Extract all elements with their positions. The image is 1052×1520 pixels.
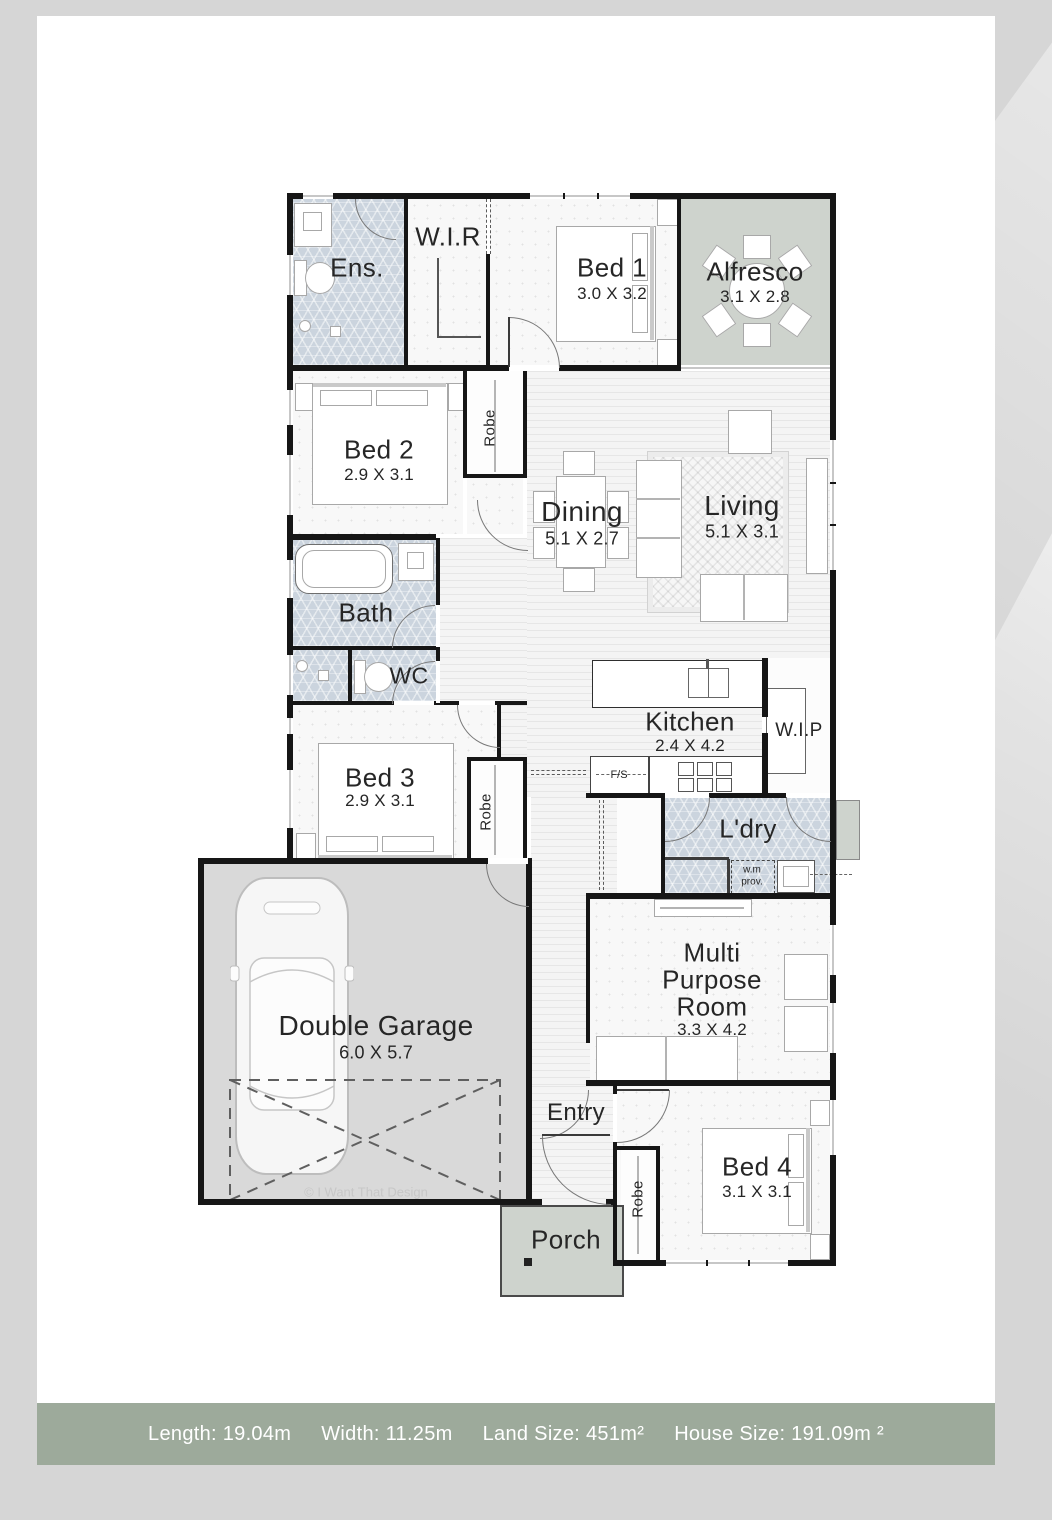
room-label-entry: Entry (547, 1099, 605, 1127)
room-label-bed2: Bed 2 (344, 435, 414, 466)
room-label-ens: Ens. (330, 253, 384, 284)
bed4-side-table (810, 1234, 830, 1260)
wall (486, 254, 490, 367)
window (287, 390, 293, 425)
room-label-bath: Bath (338, 598, 393, 629)
bed4-side-table (810, 1100, 830, 1126)
living-media-unit (806, 458, 828, 574)
label-robe-bed2: Robe (482, 409, 499, 446)
shower-head-icon (296, 660, 308, 672)
room-dims-kitchen: 2.4 X 4.2 (655, 736, 725, 756)
room-label-wip: W.I.P (775, 720, 822, 742)
shower-head-icon (299, 320, 311, 332)
cooktop-burner (697, 762, 713, 776)
room-dims-living: 5.1 X 3.1 (705, 522, 779, 543)
room-label-dining: Dining (541, 496, 623, 528)
mpr-chair (784, 954, 828, 1000)
shower-drain-icon (318, 670, 329, 681)
wall (198, 858, 532, 864)
bed4-headboard (806, 1128, 810, 1232)
hall-dashed-line (599, 800, 604, 890)
laundry-partition (727, 859, 730, 893)
wall (523, 757, 527, 862)
bed1-side-table (657, 339, 679, 366)
room-label-wc: WC (389, 663, 428, 690)
sofa-cushion-line (665, 1036, 667, 1080)
laundry-tub-bowl (783, 866, 809, 887)
wall (467, 757, 471, 862)
living-armchair (728, 410, 772, 454)
stat-width: Width: 11.25m (321, 1423, 452, 1446)
footer-stats-bar: Length: 19.04m Width: 11.25m Land Size: … (37, 1403, 995, 1465)
door-leaf (508, 317, 510, 367)
label-wm-line2: prov. (741, 877, 763, 888)
hall-dashed-line (531, 770, 586, 775)
floor-plan: Ens. W.I.R Bed 1 3.0 X 3.2 Alfresco 3.1 … (0, 0, 1052, 1520)
wall (523, 371, 527, 478)
window-mullion (706, 1260, 708, 1266)
alfresco-chair (743, 323, 771, 347)
bed2-pillow (320, 390, 372, 406)
window-mullion (748, 1260, 750, 1266)
room-label-living: Living (704, 490, 780, 522)
wall (586, 893, 590, 1043)
window (830, 1003, 836, 1053)
living-sofa (636, 460, 682, 578)
wall (198, 1199, 532, 1205)
sofa-cushion-line (743, 574, 745, 620)
window (666, 1260, 788, 1266)
bed2-side-table (295, 383, 313, 411)
stat-length: Length: 19.04m (148, 1423, 291, 1446)
bed2-headboard (312, 383, 446, 387)
bed3-side-table (296, 833, 316, 860)
cooktop-burner (678, 778, 694, 792)
window (287, 655, 293, 695)
alfresco-chair (743, 235, 771, 259)
bed3-pillow (382, 836, 434, 852)
room-label-bed3: Bed 3 (345, 763, 415, 794)
wall (677, 193, 681, 371)
bed3-pillow (326, 836, 378, 852)
window-mullion (830, 482, 836, 484)
room-label-bed4: Bed 4 (722, 1152, 792, 1183)
room-dims-mpr: 3.3 X 4.2 (677, 1020, 747, 1040)
window (287, 255, 293, 295)
wall (762, 658, 768, 717)
label-robe-bed4: Robe (630, 1180, 647, 1217)
cooktop-burner (697, 778, 713, 792)
bed2-pillow (376, 390, 428, 406)
kitchen-island (592, 660, 764, 708)
room-dims-bed3: 2.9 X 3.1 (345, 791, 415, 811)
window (830, 925, 836, 975)
garage-turning-area (228, 1078, 502, 1202)
wir-opening-dashed (486, 199, 491, 254)
room-dims-garage: 6.0 X 5.7 (339, 1043, 413, 1064)
dining-chair (563, 451, 595, 475)
ensuite-basin (303, 212, 322, 231)
wall (467, 757, 527, 761)
wall (463, 371, 467, 478)
wall (656, 1146, 660, 1260)
wall (348, 646, 352, 705)
cooktop-burner (716, 762, 732, 776)
mpr-chair (784, 1006, 828, 1052)
porch-post (524, 1258, 532, 1266)
stat-land-size: Land Size: 451m² (483, 1423, 645, 1446)
window (530, 193, 630, 199)
sliding-door (681, 365, 830, 371)
window-mullion (563, 193, 565, 199)
laundry-nook-floor (617, 797, 661, 893)
label-fridge-space: F/S (610, 769, 627, 781)
window (287, 455, 293, 515)
watermark: © I Want That Design (304, 1185, 428, 1200)
window-mullion (830, 524, 836, 526)
wall (586, 1080, 830, 1086)
tap-icon (706, 659, 709, 669)
hall-floor-upper (440, 538, 527, 705)
wall (617, 1146, 660, 1150)
window (287, 718, 293, 734)
window-mullion (597, 193, 599, 199)
sofa-cushion-line (636, 537, 680, 539)
wall (526, 862, 532, 1205)
window (830, 1100, 836, 1155)
laundry-partition (665, 857, 729, 860)
label-wm-line1: w.m (743, 865, 761, 876)
door-leaf (617, 1089, 669, 1091)
room-label-porch: Porch (531, 1225, 601, 1256)
door-opening (436, 661, 440, 703)
room-label-laundry: L'dry (719, 814, 777, 845)
bathtub-inner (302, 550, 386, 588)
mpr-console-line (660, 907, 744, 909)
shower-drain-icon (330, 326, 341, 337)
door-opening (436, 605, 440, 647)
bench-divider (648, 756, 650, 794)
external-pad (836, 800, 860, 860)
room-dims-bed1: 3.0 X 3.2 (577, 284, 647, 304)
bed1-side-table (657, 199, 679, 226)
wall (532, 1199, 542, 1205)
door-leaf (542, 1134, 610, 1136)
sink-bowl (688, 668, 709, 698)
dining-chair (563, 568, 595, 592)
room-dims-alfresco: 3.1 X 2.8 (720, 287, 790, 307)
wall (463, 474, 527, 478)
wall (613, 1142, 617, 1260)
sofa-cushion-line (636, 498, 680, 500)
room-dims-bed4: 3.1 X 3.1 (722, 1182, 792, 1202)
window (830, 440, 836, 570)
wall (287, 534, 436, 540)
mpr-sofa (596, 1036, 738, 1082)
sink-bowl (708, 668, 729, 698)
room-label-garage: Double Garage (278, 1010, 473, 1042)
cooktop-burner (678, 762, 694, 776)
room-dims-dining: 5.1 X 2.7 (545, 529, 619, 550)
room-label-bed1: Bed 1 (577, 253, 647, 284)
room-label-mpr-3: Room (677, 992, 748, 1023)
wall (198, 858, 204, 1205)
room-label-wir: W.I.R (415, 222, 481, 253)
wall (586, 893, 830, 899)
window (303, 193, 333, 199)
label-robe-bed3: Robe (478, 793, 495, 830)
room-label-alfresco: Alfresco (706, 257, 803, 288)
window (287, 770, 293, 828)
stat-house-size: House Size: 191.09m ² (674, 1423, 884, 1446)
wir-shelf (437, 258, 439, 338)
room-label-kitchen: Kitchen (645, 707, 735, 738)
room-dims-bed2: 2.9 X 3.1 (344, 465, 414, 485)
hall-patch (501, 705, 527, 757)
window (287, 560, 293, 598)
wir-shelf (437, 336, 481, 338)
wall (762, 733, 768, 795)
wall (404, 197, 408, 367)
bed1-headboard (650, 226, 654, 340)
cooktop-burner (716, 778, 732, 792)
page: { "footer": { "items": ["Length: 19.04m"… (0, 0, 1052, 1520)
bath-basin (407, 552, 424, 569)
